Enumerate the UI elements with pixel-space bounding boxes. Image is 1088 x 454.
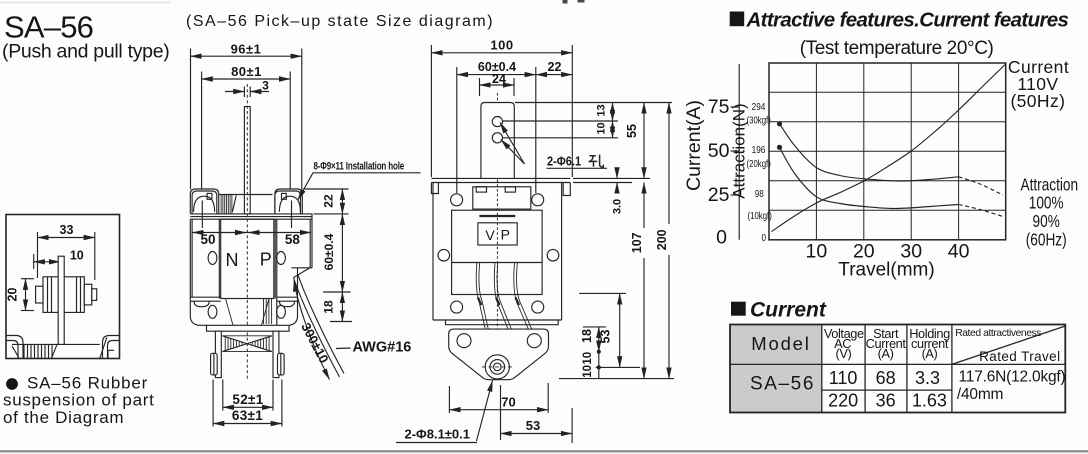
svg-text:63±1: 63±1 [232, 408, 263, 423]
svg-text:N: N [226, 250, 239, 270]
svg-text:1.63: 1.63 [912, 391, 947, 411]
svg-text:90%: 90% [1033, 213, 1060, 232]
svg-text:70: 70 [501, 395, 515, 410]
svg-text:(60Hz): (60Hz) [1026, 231, 1067, 250]
svg-text:Model: Model [751, 333, 810, 354]
svg-text:(30kgf): (30kgf) [747, 114, 771, 125]
svg-text:Current(A): Current(A) [683, 100, 705, 191]
svg-text:Travel(mm): Travel(mm) [838, 260, 934, 281]
svg-text:P: P [260, 250, 272, 270]
svg-text:22: 22 [548, 60, 562, 74]
svg-text:53: 53 [599, 330, 613, 344]
svg-text:300±10: 300±10 [298, 320, 332, 365]
svg-text:(50Hz): (50Hz) [1010, 91, 1065, 111]
svg-text:53: 53 [526, 418, 540, 433]
svg-text:P: P [501, 227, 510, 243]
svg-text:96±1: 96±1 [231, 42, 262, 57]
svg-text:18: 18 [580, 329, 594, 343]
svg-text:220: 220 [828, 390, 858, 410]
svg-text:SA–56: SA–56 [4, 10, 93, 45]
svg-text:36: 36 [876, 390, 896, 410]
svg-text:80±1: 80±1 [231, 64, 262, 79]
svg-text:(20kgf): (20kgf) [747, 158, 771, 169]
svg-text:117.6N(12.0kgf): 117.6N(12.0kgf) [959, 369, 1066, 386]
svg-text:10: 10 [582, 365, 594, 378]
svg-text:V: V [485, 227, 495, 243]
svg-text:SA–56: SA–56 [750, 374, 815, 395]
svg-text:/40mm: /40mm [957, 386, 1003, 403]
svg-text:294: 294 [752, 101, 766, 112]
svg-text:100%: 100% [1029, 194, 1064, 213]
svg-text:Rated Travel: Rated Travel [979, 349, 1060, 364]
svg-text:2-Φ8.1±0.1: 2-Φ8.1±0.1 [405, 427, 471, 442]
svg-text:suspension of part: suspension of part [3, 391, 155, 410]
svg-text:24: 24 [492, 72, 506, 86]
svg-text:196: 196 [752, 144, 766, 155]
svg-text:0: 0 [762, 232, 767, 243]
svg-text:(Test temperature 20°C): (Test temperature 20°C) [800, 38, 994, 59]
svg-text:98: 98 [755, 188, 764, 199]
svg-text:(10kgf): (10kgf) [748, 210, 772, 221]
svg-text:20: 20 [6, 288, 20, 302]
svg-text:Rated attractiveness: Rated attractiveness [955, 328, 1041, 339]
svg-text:40: 40 [948, 241, 970, 263]
svg-text:10: 10 [596, 122, 608, 134]
svg-text:3: 3 [262, 79, 269, 93]
svg-text:18: 18 [322, 300, 336, 314]
svg-text:0: 0 [716, 227, 727, 249]
svg-text:33: 33 [60, 223, 74, 237]
svg-text:2-Φ6.1: 2-Φ6.1 [547, 155, 582, 169]
svg-text:75: 75 [708, 96, 730, 118]
svg-text:of the Diagram: of the Diagram [3, 408, 124, 427]
svg-text:200: 200 [655, 229, 669, 250]
svg-text:100: 100 [490, 38, 513, 53]
svg-text:Attraction(N): Attraction(N) [730, 103, 749, 198]
svg-text:(SA–56 Pick–up state Size dia: (SA–56 Pick–up state Size diagram) [186, 13, 494, 30]
svg-text:110: 110 [829, 368, 858, 388]
svg-text:8-Φ9×11 Installation hole: 8-Φ9×11 Installation hole [314, 160, 405, 173]
svg-text:55: 55 [625, 124, 639, 138]
svg-text:107: 107 [630, 232, 644, 253]
svg-text:50: 50 [200, 232, 215, 247]
svg-text:(A): (A) [922, 346, 938, 361]
svg-text:Attraction: Attraction [1020, 176, 1078, 195]
svg-text:10: 10 [70, 249, 84, 263]
svg-text:Attractive features.Current fe: Attractive features.Current features [746, 9, 1069, 32]
svg-text:68: 68 [876, 368, 896, 388]
svg-text:58: 58 [285, 232, 301, 247]
svg-text:25: 25 [708, 184, 730, 206]
svg-text:(A): (A) [878, 346, 894, 361]
svg-text:(V): (V) [835, 346, 851, 361]
svg-text:AWG#16: AWG#16 [353, 340, 412, 356]
svg-text:10: 10 [806, 241, 828, 263]
svg-text:60±0.4: 60±0.4 [322, 233, 336, 270]
svg-text:50: 50 [708, 140, 730, 162]
svg-text:3.3: 3.3 [915, 368, 940, 388]
svg-text:(Push and pull type): (Push and pull type) [2, 41, 169, 63]
svg-text:52±1: 52±1 [232, 392, 263, 407]
svg-text:3.0: 3.0 [612, 199, 624, 214]
svg-text:Current: Current [750, 298, 827, 321]
svg-text:22: 22 [322, 194, 336, 208]
svg-text:13: 13 [596, 104, 608, 116]
svg-text:10: 10 [582, 352, 594, 365]
